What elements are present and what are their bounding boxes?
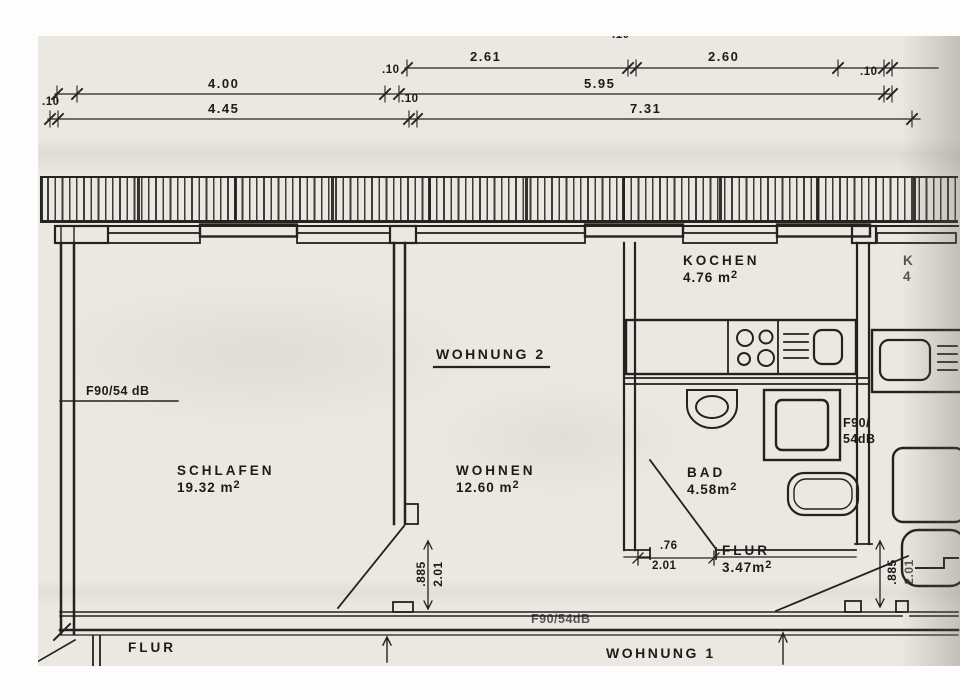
dim-label-7-31: 7.31 — [630, 102, 661, 115]
lower-hall-wall-stub — [93, 636, 100, 666]
room-label-flur: FLUR — [722, 544, 770, 558]
dim-label-2-60: 2.60 — [708, 50, 739, 63]
dim-label-10-mid-upper: .10 — [382, 65, 400, 77]
entry-door-width: .885 — [886, 551, 898, 593]
dim-label-4-45: 4.45 — [208, 102, 239, 115]
door-dimension-lines — [424, 541, 884, 609]
entry-door-height: 2.01 — [903, 551, 915, 593]
fire-rating-right-wall-line2: 54dB — [843, 433, 876, 446]
unit-title-wohnung-1: WOHNUNG 1 — [606, 646, 716, 660]
dim-label-10-mid-lower: .10 — [401, 94, 419, 106]
dim-label-10-left: .10 — [42, 97, 60, 109]
window-wall — [55, 225, 958, 244]
fire-rating-bottom-wall: F90/54dB — [531, 613, 591, 626]
scan-margin-left — [0, 0, 38, 697]
neighbor-kitchen-counter — [872, 330, 960, 392]
dim-label-4-00: 4.00 — [208, 77, 239, 90]
room-area-schlafen: 19.32 m2 — [177, 480, 240, 495]
neighbor-kitchen-label-partial: K — [903, 254, 916, 268]
toilet — [687, 390, 737, 428]
bad-door-width: .76 — [660, 541, 678, 553]
room-area-kochen: 4.76 m2 — [683, 270, 737, 285]
room-label-schlafen: SCHLAFEN — [177, 464, 275, 478]
neighbor-drainer — [938, 346, 957, 370]
room-area-bad: 4.58m2 — [687, 482, 736, 497]
scan-margin-top — [0, 0, 960, 36]
window-frame — [108, 233, 956, 243]
kitchen-counter — [626, 320, 856, 374]
fire-rating-left-wall: F90/54 dB — [86, 385, 150, 398]
schlafen-door-width: .885 — [415, 553, 427, 595]
room-area-wohnen: 12.60 m2 — [456, 480, 519, 495]
top-dimension-lines — [48, 68, 938, 119]
bad-door-height: 2.01 — [652, 561, 676, 573]
bedroom-living-wall — [338, 243, 418, 612]
bedroom-door-swing — [338, 526, 404, 608]
floorplan-scan: { "dims": { "tick_small": ".10", "row1":… — [0, 0, 960, 697]
room-label-flur-unit1: FLUR — [128, 641, 176, 655]
room-area-flur: 3.47m2 — [722, 560, 771, 575]
fire-rating-right-wall-line1: F90/ — [843, 417, 870, 430]
unit-title-wohnung-2: WOHNUNG 2 — [436, 347, 546, 361]
dim-label-10-right: .10 — [860, 67, 878, 79]
room-label-bad: BAD — [687, 466, 725, 480]
scan-margin-bottom — [0, 666, 960, 697]
kitchen-sink — [784, 330, 842, 364]
dim-label-2-61: 2.61 — [470, 50, 501, 63]
room-label-wohnen: WOHNEN — [456, 464, 536, 478]
stove-burners — [737, 330, 774, 366]
bath-basin — [788, 473, 858, 515]
dim-label-5-95: 5.95 — [584, 77, 615, 90]
neighbor-sink — [880, 340, 930, 380]
unit-boundary-arrow — [383, 633, 787, 664]
shower-tray — [764, 390, 840, 460]
kitchen-bath-walls — [624, 243, 872, 559]
neighbor-kitchen-area-partial: 4 — [903, 270, 912, 284]
schlafen-door-height: 2.01 — [432, 553, 444, 595]
room-label-kochen: KOCHEN — [683, 254, 760, 268]
left-exterior-wall — [61, 243, 74, 634]
